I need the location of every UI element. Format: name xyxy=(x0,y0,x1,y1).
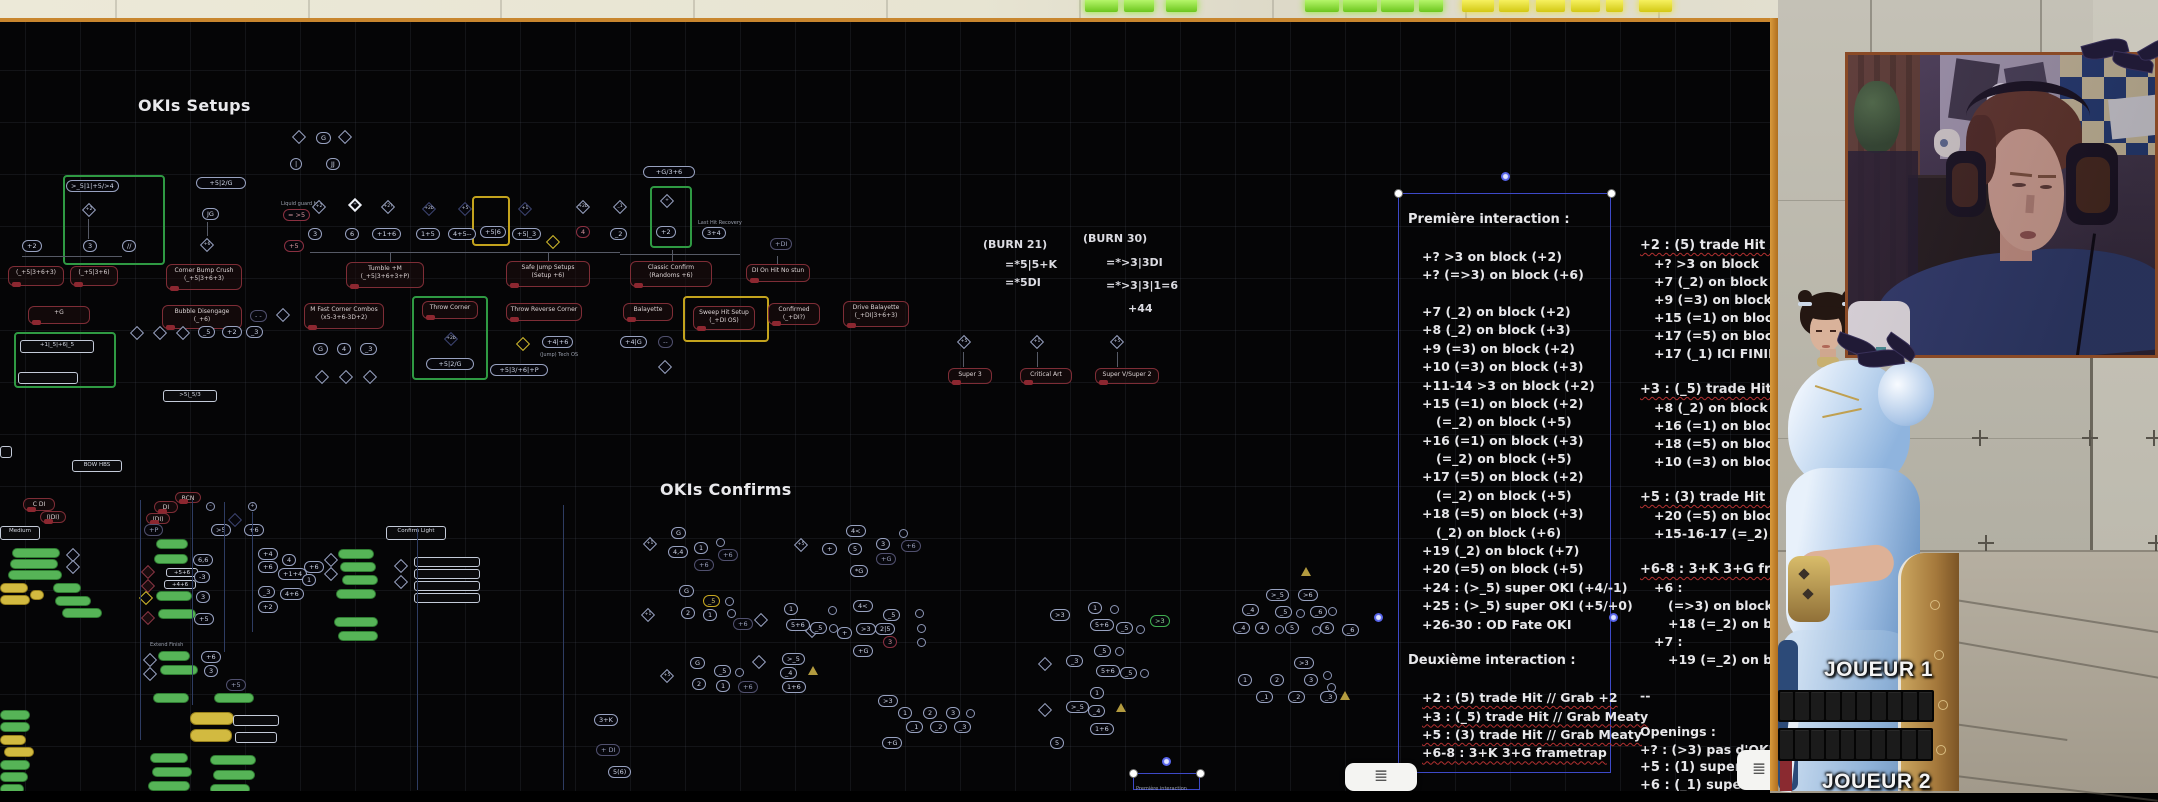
node-pill-green[interactable] xyxy=(210,755,256,765)
panel-line: +? >3 on block (+2) xyxy=(1408,249,1628,267)
mini-circle-node[interactable] xyxy=(1323,671,1332,680)
frame-meter-green-segment xyxy=(1124,0,1154,12)
node-pill[interactable]: 1 xyxy=(1090,687,1104,699)
node-pill[interactable]: JJ xyxy=(326,158,340,170)
node-title-box[interactable]: (_+5|3+6+3) xyxy=(8,266,64,286)
node-pill[interactable]: 1+6 xyxy=(1090,723,1114,735)
node-outline-box[interactable] xyxy=(414,557,480,567)
decision-diamond-icon[interactable] xyxy=(752,655,766,669)
connector-line xyxy=(777,256,778,264)
node-pill[interactable]: 5 xyxy=(1050,737,1064,749)
mini-circle-node[interactable] xyxy=(727,609,736,618)
node-pill[interactable]: _5 xyxy=(1275,606,1292,618)
node-outline-box[interactable] xyxy=(414,593,480,603)
node-pill-dark[interactable]: - - xyxy=(250,310,267,322)
node-pill[interactable]: +5 xyxy=(194,613,214,625)
node-pill[interactable]: +6 xyxy=(258,561,278,573)
node-title-box[interactable]: Tumble +M (_+5|3+6+3+P) xyxy=(346,262,424,288)
node-title-box[interactable]: DI On Hit No stun xyxy=(746,264,810,282)
mini-circle-node[interactable] xyxy=(1296,609,1305,618)
node-pill[interactable]: +5|2/G xyxy=(426,358,474,370)
node-pill[interactable]: 4< xyxy=(846,525,866,537)
node-pill-yellow-border[interactable]: _5 xyxy=(703,595,720,607)
node-pill-red[interactable]: = >5 xyxy=(283,209,310,221)
mini-circle-node[interactable] xyxy=(1110,605,1119,614)
decision-diamond-icon[interactable] xyxy=(276,308,290,322)
mini-circle-node[interactable] xyxy=(899,529,908,538)
connector-line xyxy=(310,252,620,253)
node-pill[interactable]: _5 xyxy=(1116,622,1133,634)
panel-line: +7 : xyxy=(1640,634,1770,652)
selection-handle[interactable] xyxy=(1196,769,1205,778)
node-pill-green[interactable] xyxy=(153,693,189,703)
node-pill[interactable]: 5+6 xyxy=(1096,665,1120,677)
node-pill[interactable]: + xyxy=(837,627,852,639)
node-pill[interactable]: JG xyxy=(202,208,219,220)
node-pill[interactable]: >3 xyxy=(878,695,898,707)
node-pill[interactable]: >6 xyxy=(1298,589,1318,601)
input-history-cell xyxy=(1856,730,1869,759)
node-pill[interactable]: +5|3/+6|+P xyxy=(490,364,548,376)
node-pill-green[interactable] xyxy=(158,651,190,661)
node-pill[interactable]: 6 xyxy=(345,228,359,240)
node-pill[interactable]: >_5 xyxy=(1266,589,1289,601)
node-outline-box[interactable]: +1|_5|+6|_5 xyxy=(20,340,94,353)
node-pill[interactable]: _5 xyxy=(810,622,827,634)
decision-diamond-navy-icon[interactable] xyxy=(228,513,242,527)
node-pill-dark[interactable]: +G xyxy=(876,553,896,565)
selection-handle[interactable] xyxy=(1394,189,1403,198)
node-pill[interactable]: G xyxy=(679,585,694,597)
node-pill[interactable]: 2|5 xyxy=(875,623,895,635)
decision-diamond-icon[interactable]: +2? xyxy=(381,200,395,214)
node-pill-yellow[interactable] xyxy=(0,595,30,605)
node-pill-dark[interactable]: +P xyxy=(144,524,163,536)
node-pill[interactable]: +5|_3 xyxy=(512,228,541,240)
node-pill[interactable]: 4< xyxy=(853,600,873,612)
node-pill-dark[interactable]: +6 xyxy=(738,681,758,693)
node-pill[interactable]: +2 xyxy=(222,326,242,338)
node-pill[interactable]: 3 xyxy=(83,240,97,252)
node-pill[interactable]: >_5|1|+5/>4 xyxy=(66,180,119,192)
node-pill[interactable]: 3 xyxy=(1304,674,1318,686)
decision-diamond-navy-icon[interactable]: +5 xyxy=(458,202,472,216)
node-pill[interactable]: +5|6 xyxy=(480,226,506,238)
node-outline-box[interactable]: BOW HBS xyxy=(72,460,122,472)
decision-diamond-icon[interactable] xyxy=(394,575,408,589)
mini-circle-node[interactable]: + xyxy=(248,502,257,511)
decision-diamond-icon[interactable] xyxy=(292,130,306,144)
node-pill[interactable]: +G xyxy=(882,737,902,749)
node-pill[interactable]: >5 xyxy=(211,524,231,536)
node-pill[interactable]: _6 xyxy=(1342,624,1359,636)
panel-line: +19 (=_2) on bloc xyxy=(1640,652,1770,670)
node-pill-green[interactable] xyxy=(0,710,30,720)
node-pill[interactable]: _4 xyxy=(780,667,797,679)
node-pill[interactable]: 2 xyxy=(923,707,937,719)
decision-diamond-icon[interactable]: +5 xyxy=(957,335,971,349)
node-pill[interactable]: 1 xyxy=(703,609,717,621)
node-pill-green[interactable] xyxy=(12,548,60,558)
node-outline-box[interactable] xyxy=(0,446,12,458)
decision-diamond-navy-icon[interactable]: +2b xyxy=(422,202,436,216)
node-pill[interactable]: +6 xyxy=(244,524,264,536)
selection-handle[interactable] xyxy=(1129,769,1138,778)
node-pill-green[interactable] xyxy=(55,596,91,606)
node-title-box[interactable]: Safe Jump Setups (Setup +6) xyxy=(506,261,590,287)
mini-circle-node[interactable] xyxy=(917,638,926,647)
node-pill-green[interactable] xyxy=(0,722,30,732)
node-title-box[interactable]: Drive Balayette (_+DI|3+6+3) xyxy=(843,301,909,327)
node-pill-green[interactable] xyxy=(156,539,188,549)
node-pill-yellow[interactable] xyxy=(190,712,234,725)
decision-diamond-icon[interactable] xyxy=(66,560,80,574)
node-pill-green[interactable] xyxy=(158,609,196,619)
node-pill-green[interactable] xyxy=(156,591,192,601)
mini-circle-node[interactable] xyxy=(716,538,725,547)
node-pill[interactable]: _3 xyxy=(1320,691,1337,703)
node-pill-green[interactable] xyxy=(336,589,376,599)
connection-dot[interactable] xyxy=(1501,172,1510,181)
mini-circle-node[interactable]: – xyxy=(206,502,215,511)
node-pill[interactable]: _5 xyxy=(883,609,900,621)
mini-circle-node[interactable] xyxy=(917,624,926,633)
decision-diamond-icon[interactable] xyxy=(339,370,353,384)
decision-diamond-yellow-icon[interactable] xyxy=(516,337,530,351)
decision-diamond-navy-icon[interactable]: +1 xyxy=(518,202,532,216)
node-pill-green[interactable] xyxy=(148,781,190,791)
list-button[interactable]: ≣ xyxy=(1737,750,1770,790)
node-title-box[interactable]: BCN xyxy=(175,492,201,503)
chunli-band-swirl xyxy=(1930,600,1940,610)
node-pill[interactable]: _3 xyxy=(246,326,263,338)
warning-triangle-icon xyxy=(808,666,818,675)
node-pill[interactable]: _5 xyxy=(198,326,215,338)
node-pill[interactable]: >3 xyxy=(1050,609,1070,621)
mini-circle-node[interactable] xyxy=(1328,607,1337,616)
tiny-label: Extend Finish xyxy=(150,642,183,648)
decision-diamond-icon[interactable] xyxy=(324,567,338,581)
node-pill[interactable]: 6,6 xyxy=(193,554,213,566)
node-pill[interactable]: _4 xyxy=(1233,622,1250,634)
node-pill-red[interactable]: +5 xyxy=(284,240,304,252)
node-title-box[interactable]: C DI xyxy=(23,498,55,511)
node-pill[interactable]: +2 xyxy=(258,601,278,613)
node-outline-box[interactable] xyxy=(235,732,277,743)
node-title-box[interactable]: Super V/Super 2 xyxy=(1095,368,1159,384)
decision-diamond-icon[interactable] xyxy=(130,326,144,340)
node-pill-green[interactable] xyxy=(338,549,374,559)
node-pill-dark[interactable]: +6 xyxy=(733,618,753,630)
mini-circle-node[interactable] xyxy=(915,609,924,618)
node-pill-yellow[interactable] xyxy=(30,590,44,600)
node-pill[interactable]: 1 xyxy=(1088,602,1102,614)
node-pill[interactable]: _3 xyxy=(360,343,377,355)
decision-diamond-red-icon[interactable] xyxy=(141,565,155,579)
node-outline-box[interactable] xyxy=(233,715,279,726)
node-pill[interactable]: *G xyxy=(850,565,868,577)
node-pill[interactable]: 3 xyxy=(204,665,218,677)
node-title-box[interactable]: Balayette xyxy=(623,303,673,321)
node-pill-dark[interactable]: + DI xyxy=(596,744,620,756)
node-pill-green[interactable] xyxy=(340,562,376,572)
list-button[interactable]: ≣ xyxy=(1345,763,1417,791)
node-title-box[interactable]: Corner Bump Crush (_+5|3+6+3) xyxy=(166,264,242,290)
node-pill[interactable]: _6 xyxy=(1310,606,1327,618)
decision-diamond-icon[interactable]: +2b xyxy=(576,200,590,214)
node-pill[interactable]: 4 xyxy=(337,343,351,355)
node-pill[interactable]: +G/3+6 xyxy=(643,166,695,178)
node-pill[interactable]: _2 xyxy=(1288,691,1305,703)
node-pill[interactable]: +4|G xyxy=(620,336,647,348)
decision-diamond-icon[interactable] xyxy=(324,553,338,567)
node-pill[interactable]: +G xyxy=(853,645,873,657)
node-pill[interactable]: 3+4 xyxy=(702,227,726,239)
node-pill-green[interactable] xyxy=(62,608,102,618)
node-pill-dark[interactable]: -- xyxy=(658,336,673,348)
node-pill[interactable]: >3 xyxy=(1294,657,1314,669)
decision-diamond-icon[interactable]: +1 xyxy=(643,537,657,551)
node-pill[interactable]: _2 xyxy=(610,228,627,240)
node-pill[interactable]: 5 xyxy=(848,543,862,555)
node-pill[interactable]: _5 xyxy=(1094,645,1111,657)
mini-circle-node[interactable] xyxy=(1275,625,1284,634)
node-outline-box[interactable] xyxy=(414,569,480,579)
mini-circle-node[interactable] xyxy=(735,668,744,677)
node-outline-box[interactable]: >5|_5/3 xyxy=(163,390,217,402)
node-title-box[interactable]: Throw Reverse Corner xyxy=(506,303,582,321)
node-title-box[interactable]: (IDI) xyxy=(40,511,66,523)
decision-diamond-icon[interactable]: +1 xyxy=(641,608,655,622)
node-pill[interactable]: 3 xyxy=(196,591,210,603)
node-pill[interactable]: +6 xyxy=(201,651,221,663)
node-pill[interactable]: G xyxy=(690,657,705,669)
section-title: OKIs Confirms xyxy=(660,480,792,500)
node-title-box[interactable]: Sweep Hit Setup (_+DI OS) xyxy=(693,306,755,330)
node-pill[interactable]: 1 xyxy=(1238,674,1252,686)
node-pill[interactable]: -3 xyxy=(194,571,210,583)
node-pill-dark[interactable]: +6 xyxy=(718,549,738,561)
node-outline-box[interactable]: Confirm Light xyxy=(386,526,446,540)
decision-diamond-white-icon[interactable]: + xyxy=(348,198,362,212)
node-pill-green[interactable] xyxy=(152,767,192,777)
node-pill-green[interactable] xyxy=(334,617,378,627)
node-pill[interactable]: _4 xyxy=(1242,604,1259,616)
node-pill[interactable]: +6 xyxy=(304,561,324,573)
node-title-box[interactable]: Classic Confirm (Randoms +6) xyxy=(630,261,712,287)
decision-diamond-icon[interactable] xyxy=(658,360,672,374)
node-pill[interactable]: | xyxy=(290,158,302,170)
node-pill[interactable]: +2 xyxy=(22,240,42,252)
node-pill-green[interactable] xyxy=(0,760,30,770)
node-pill-green[interactable] xyxy=(338,631,378,641)
notes-panel-confirm-routes[interactable]: +2 : (5) trade Hit // Gr+? >3 on block+7… xyxy=(1640,238,1770,791)
node-pill[interactable]: _4 xyxy=(1088,705,1105,717)
node-pill[interactable]: _3 xyxy=(954,721,971,733)
node-pill[interactable]: 5+6 xyxy=(786,619,810,631)
node-pill[interactable]: 3 xyxy=(308,228,322,240)
node-title-box[interactable]: DI xyxy=(154,501,178,513)
decision-diamond-icon[interactable] xyxy=(143,653,157,667)
mini-circle-node[interactable] xyxy=(966,709,975,718)
mini-circle-node[interactable] xyxy=(828,606,837,615)
node-pill[interactable]: 3 xyxy=(876,538,890,550)
decision-diamond-icon[interactable] xyxy=(153,326,167,340)
node-pill-dark[interactable]: +6 xyxy=(694,559,714,571)
node-pill[interactable]: 5+6 xyxy=(1090,619,1114,631)
mini-circle-node[interactable] xyxy=(829,624,838,633)
node-pill-green[interactable] xyxy=(213,770,255,780)
node-title-box[interactable]: Critical Art xyxy=(1020,368,1072,384)
decision-diamond-icon[interactable]: +5 xyxy=(794,538,808,552)
node-outline-box[interactable]: Medium xyxy=(0,526,40,540)
decision-diamond-icon[interactable] xyxy=(363,370,377,384)
decision-diamond-icon[interactable]: _1 xyxy=(613,200,627,214)
node-pill[interactable]: 4,4 xyxy=(668,546,688,558)
decision-diamond-icon[interactable]: +2 xyxy=(312,200,326,214)
node-pill[interactable]: 1 xyxy=(694,542,708,554)
selection-handle[interactable] xyxy=(1607,189,1616,198)
mini-circle-node[interactable] xyxy=(1140,669,1149,678)
node-pill[interactable]: >_5 xyxy=(1066,701,1089,713)
node-pill[interactable]: _1 xyxy=(1256,691,1273,703)
node-pill[interactable]: 1 xyxy=(302,574,316,586)
decision-diamond-navy-icon[interactable]: +2b xyxy=(444,332,458,346)
node-pill-green[interactable] xyxy=(0,784,24,791)
mini-circle-node[interactable] xyxy=(725,597,734,606)
node-pill[interactable]: 2 xyxy=(692,678,706,690)
input-history-cell xyxy=(1903,692,1916,720)
node-pill-green[interactable] xyxy=(150,753,188,763)
decision-diamond-yellow-icon[interactable] xyxy=(546,235,560,249)
notes-panel-premiere-interaction[interactable]: Première interaction : +? >3 on block (+… xyxy=(1408,212,1628,782)
decision-diamond-icon[interactable]: +5 xyxy=(660,669,674,683)
input-history-cell xyxy=(1811,730,1824,759)
decision-diamond-icon[interactable] xyxy=(754,613,768,627)
node-pill-dark[interactable]: +5 xyxy=(226,679,246,691)
node-outline-box[interactable] xyxy=(414,581,480,591)
node-title-box[interactable]: (DI) xyxy=(146,513,170,524)
node-pill[interactable]: 4 xyxy=(1255,622,1269,634)
node-pill[interactable]: +1+6 xyxy=(372,228,401,240)
wall-cross-mark xyxy=(1978,535,1994,551)
node-pill[interactable]: 3 xyxy=(946,707,960,719)
decision-diamond-icon[interactable] xyxy=(315,370,329,384)
node-pill[interactable]: 4+6 xyxy=(280,588,304,600)
decision-diamond-icon[interactable]: +2 xyxy=(82,203,96,217)
node-pill[interactable]: _3 xyxy=(258,586,275,598)
node-pill-green[interactable] xyxy=(8,570,62,580)
connection-dot[interactable] xyxy=(1374,613,1383,622)
node-pill[interactable]: _2 xyxy=(930,721,947,733)
node-pill-green[interactable] xyxy=(154,554,188,564)
decision-diamond-icon[interactable] xyxy=(1038,703,1052,717)
connection-dot[interactable] xyxy=(1162,757,1171,766)
decision-diamond-icon[interactable] xyxy=(338,130,352,144)
decision-diamond-icon[interactable]: +5 xyxy=(1110,335,1124,349)
connection-dot[interactable] xyxy=(1609,613,1618,622)
node-pill[interactable]: 1 xyxy=(898,707,912,719)
node-title-box[interactable]: M Fast Corner Combos (x5-3+6-3D+2) xyxy=(304,303,384,329)
node-pill-green-border[interactable]: >3 xyxy=(1150,615,1170,627)
node-outline-box[interactable] xyxy=(18,372,78,384)
node-pill[interactable]: 4 xyxy=(282,554,296,566)
node-title-box[interactable]: Confirmed (_+DI?) xyxy=(768,303,820,325)
node-pill[interactable]: 3+K xyxy=(594,714,618,726)
mini-circle-node[interactable] xyxy=(1136,625,1145,634)
node-pill-green[interactable] xyxy=(0,772,28,782)
node-pill-yellow[interactable] xyxy=(4,747,34,757)
node-pill-red[interactable]: 3 xyxy=(883,636,897,648)
node-title-box[interactable]: (_+5|3+6) xyxy=(70,266,118,286)
decision-diamond-icon[interactable] xyxy=(394,559,408,573)
node-pill-dark[interactable]: +DI xyxy=(770,238,792,250)
node-pill[interactable]: _5 xyxy=(1120,667,1137,679)
node-pill[interactable]: +4|+6 xyxy=(542,336,573,348)
node-pill[interactable]: _1 xyxy=(906,721,923,733)
node-pill[interactable]: 1+5 xyxy=(416,228,440,240)
node-pill[interactable]: 6 xyxy=(1320,622,1334,634)
node-pill[interactable]: G xyxy=(316,132,331,144)
node-pill[interactable]: 5(6) xyxy=(608,766,631,778)
decision-diamond-icon[interactable]: +6 xyxy=(200,238,214,252)
decision-diamond-icon[interactable] xyxy=(176,326,190,340)
node-pill[interactable]: >_5 xyxy=(782,653,805,665)
node-pill[interactable]: _5 xyxy=(714,665,731,677)
node-pill-yellow[interactable] xyxy=(0,583,28,593)
node-pill[interactable]: G xyxy=(313,343,328,355)
node-pill-yellow[interactable] xyxy=(0,735,26,745)
node-pill[interactable]: 1+6 xyxy=(782,681,806,693)
node-pill-green[interactable] xyxy=(53,583,81,593)
node-pill[interactable]: +4 xyxy=(258,548,278,560)
node-pill-green[interactable] xyxy=(342,575,378,585)
node-pill[interactable]: +5|2/G xyxy=(196,177,246,189)
node-pill[interactable]: G xyxy=(671,527,686,539)
node-pill-yellow[interactable] xyxy=(190,729,232,742)
node-pill[interactable]: >3 xyxy=(856,623,876,635)
node-pill[interactable]: 2 xyxy=(1270,674,1284,686)
annotation-text: =*>3|3|1=6 xyxy=(1106,279,1178,293)
node-pill-green[interactable] xyxy=(214,693,254,703)
node-pill[interactable]: 1 xyxy=(716,680,730,692)
node-pill[interactable]: 2 xyxy=(681,607,695,619)
node-pill-green[interactable] xyxy=(210,784,250,791)
decision-diamond-red-icon[interactable] xyxy=(141,611,155,625)
node-pill[interactable]: +2 xyxy=(656,226,676,238)
node-title-box[interactable]: Throw Corner xyxy=(422,301,478,319)
frame-meter-yellow-segment xyxy=(1536,0,1565,12)
node-pill[interactable]: + xyxy=(822,543,837,555)
node-pill-dark[interactable]: +6 xyxy=(901,540,921,552)
decision-diamond-icon[interactable]: +1 xyxy=(1030,335,1044,349)
node-pill[interactable]: _3 xyxy=(1066,655,1083,667)
node-pill[interactable]: 1 xyxy=(784,603,798,615)
node-title-box[interactable]: +G xyxy=(28,306,90,324)
node-pill-green[interactable] xyxy=(10,559,58,569)
decision-diamond-yellow-icon[interactable] xyxy=(139,591,153,605)
node-pill[interactable]: 4+5-- xyxy=(448,228,476,240)
decision-diamond-icon[interactable] xyxy=(1038,657,1052,671)
mini-circle-node[interactable] xyxy=(1115,647,1124,656)
decision-diamond-icon[interactable]: + xyxy=(660,194,674,208)
decision-diamond-icon[interactable] xyxy=(143,667,157,681)
flowchart-canvas[interactable]: OKIs SetupsOKIs Confirms(BURN 21)=*5|5+K… xyxy=(0,22,1770,791)
node-title-box[interactable]: Super 3 xyxy=(948,368,992,384)
node-pill[interactable]: 5 xyxy=(1285,622,1299,634)
panel-line xyxy=(1408,672,1628,690)
node-pill-red[interactable]: 4 xyxy=(576,226,590,238)
